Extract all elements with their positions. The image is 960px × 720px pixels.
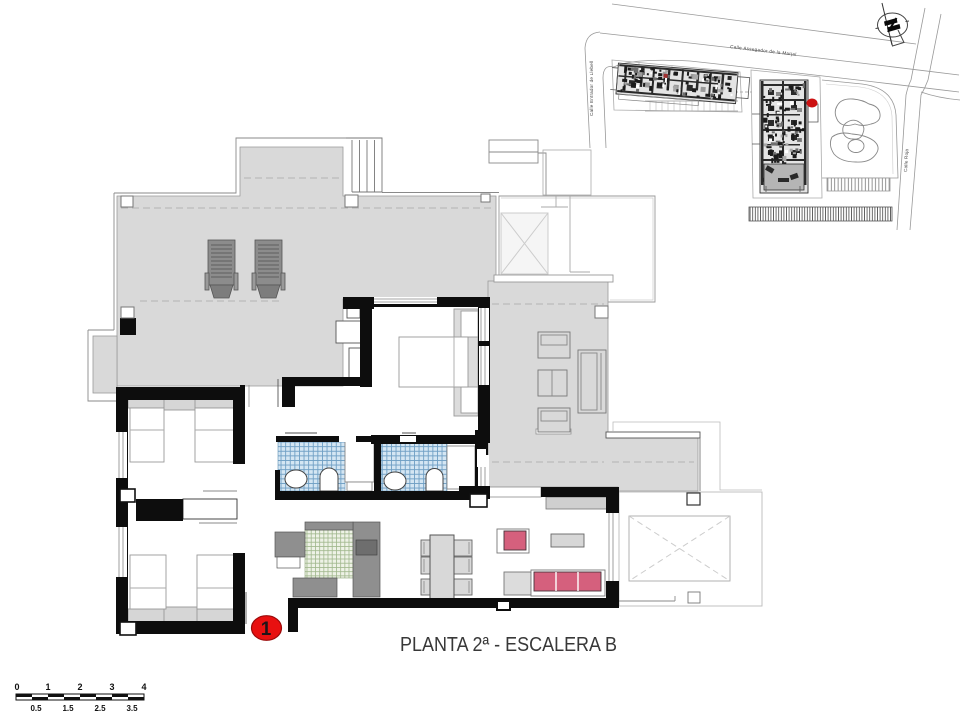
svg-text:0: 0 xyxy=(14,682,19,692)
svg-text:2: 2 xyxy=(77,682,82,692)
svg-text:3: 3 xyxy=(109,682,114,692)
svg-text:2.5: 2.5 xyxy=(94,704,106,713)
svg-text:1: 1 xyxy=(261,619,272,640)
svg-text:Calle Entrador de Llebell: Calle Entrador de Llebell xyxy=(589,61,594,116)
svg-text:1.5: 1.5 xyxy=(62,704,74,713)
svg-text:0.5: 0.5 xyxy=(30,704,42,713)
svg-text:4: 4 xyxy=(141,682,146,692)
svg-text:1: 1 xyxy=(45,682,50,692)
svg-text:3.5: 3.5 xyxy=(126,704,138,713)
svg-text:PLANTA 2ª - ESCALERA B: PLANTA 2ª - ESCALERA B xyxy=(400,634,617,656)
